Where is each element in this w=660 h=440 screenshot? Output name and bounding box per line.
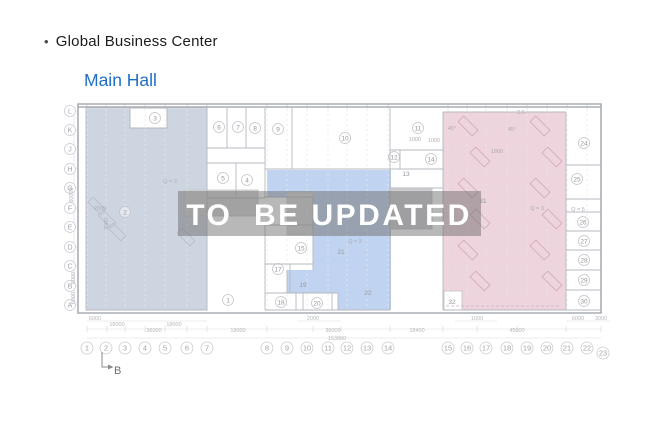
annotation: Q = 3 [163, 179, 177, 185]
room-number: 2 [123, 209, 127, 216]
dimension-label: 6000 [89, 316, 101, 322]
dimension-label: 3000 [595, 316, 607, 322]
annotation: Q = 3 [348, 239, 362, 245]
room-number: 15 [297, 245, 305, 252]
axis-number-label: 4 [143, 344, 147, 353]
axis-number-label: 2 [104, 344, 108, 353]
room-number: 20 [313, 300, 321, 307]
room-number: 8 [253, 125, 257, 132]
axis-number-label: 3 [123, 344, 127, 353]
room-number: 29 [580, 277, 588, 284]
room-number: 21 [337, 249, 345, 256]
annotation: 1000 [428, 138, 440, 144]
axis-letter-label: H [67, 166, 72, 173]
section-marker-label: B [114, 365, 121, 377]
room-number: 10 [341, 135, 349, 142]
axis-letter-label: D [67, 244, 72, 251]
axis-number-label: 12 [343, 344, 351, 353]
axis-number-label: 1 [85, 344, 89, 353]
watermark-text: TO BE UPDATED [186, 199, 472, 232]
axis-number-label: 10 [303, 344, 311, 353]
hall-name-link[interactable]: Main Hall [84, 70, 157, 91]
page: • Global Business Center Main Hall LKJHG… [0, 0, 660, 440]
axis-number-label: 7 [205, 344, 209, 353]
axis-number-label: 11 [324, 344, 332, 353]
room-number: 1 [226, 297, 230, 304]
annotation: 1000 [409, 137, 421, 143]
annotation: 2000 [94, 206, 106, 212]
axis-number-label: 17 [482, 344, 490, 353]
axis-number-label: 21 [563, 344, 571, 353]
room-number: 3 [153, 115, 157, 122]
axis-number-label: 23 [599, 349, 607, 358]
dimension-label: 1000 [471, 316, 483, 322]
room-number: 32 [448, 299, 456, 306]
room-number: 26 [579, 219, 587, 226]
room-number: 9 [276, 126, 280, 133]
room-number: 19 [299, 282, 307, 289]
axis-number-label: 19 [523, 344, 531, 353]
annotation: 2.5 [517, 110, 525, 116]
axis-number-label: 15 [444, 344, 452, 353]
axis-number-label: 22 [583, 344, 591, 353]
page-title: • Global Business Center [44, 33, 218, 50]
floor-plan: LKJHGFEDCBA12345678910111213141516171819… [0, 0, 660, 440]
annotation: Q = 3 [530, 206, 544, 212]
room-number: 7 [236, 124, 240, 131]
room-number: 22 [364, 290, 372, 297]
room-number: 30 [580, 298, 588, 305]
dimension-label: 6000 [71, 292, 77, 304]
room-number: 6 [217, 124, 221, 131]
dimension-label: 45000 [509, 328, 524, 334]
room-number: 14 [427, 156, 435, 163]
annotation: 45° [448, 126, 456, 132]
axis-number-label: 18 [503, 344, 511, 353]
dimension-label: 36000 [325, 328, 340, 334]
axis-number-label: 6 [185, 344, 189, 353]
dimension-label: 6000 [71, 272, 77, 284]
axis-number-label: 14 [384, 344, 392, 353]
room-number: 18 [277, 299, 285, 306]
room-number: 24 [580, 140, 588, 147]
annotation: 45° [508, 127, 516, 133]
dimension-label: 18400 [409, 328, 424, 334]
room-number: 25 [573, 176, 581, 183]
room-number: 5 [221, 175, 225, 182]
axis-number-label: 8 [265, 344, 269, 353]
room-number: 4 [245, 177, 249, 184]
dimension-label: 36000 [146, 328, 161, 334]
room-number: 28 [580, 257, 588, 264]
dimension-label: 6000 [572, 316, 584, 322]
axis-number-label: 16 [463, 344, 471, 353]
annotation: 3000 [104, 218, 110, 230]
room-number: 17 [274, 266, 282, 273]
room-number: 13 [402, 171, 410, 178]
axis-letter-label: F [68, 205, 72, 212]
room-box [130, 108, 167, 128]
axis-number-label: 13 [363, 344, 371, 353]
dimension-label: 18000 [109, 322, 124, 328]
page-title-text: Global Business Center [56, 33, 218, 50]
axis-number-label: 5 [163, 344, 167, 353]
axis-letter-label: J [68, 146, 72, 153]
dimension-label: 2000 [307, 316, 319, 322]
axis-number-label: 9 [285, 344, 289, 353]
room-number: 11 [415, 125, 422, 132]
room-number: 27 [580, 238, 588, 245]
axis-letter-label: K [68, 127, 73, 134]
dimension-label: 60000 [69, 187, 75, 202]
bullet-icon: • [44, 35, 49, 48]
axis-number-label: 20 [543, 344, 551, 353]
annotation: 1800 [491, 149, 503, 155]
dimension-label: 18000 [230, 328, 245, 334]
axis-letter-label: C [67, 263, 72, 270]
axis-letter-label: L [68, 108, 72, 115]
axis-letter-label: E [68, 224, 73, 231]
watermark: TO BE UPDATED [178, 191, 481, 236]
room-number: 12 [390, 154, 398, 161]
section-marker-arrow-icon [108, 365, 114, 370]
dimension-label: 153880 [328, 336, 346, 342]
dimension-label: 18000 [166, 322, 181, 328]
